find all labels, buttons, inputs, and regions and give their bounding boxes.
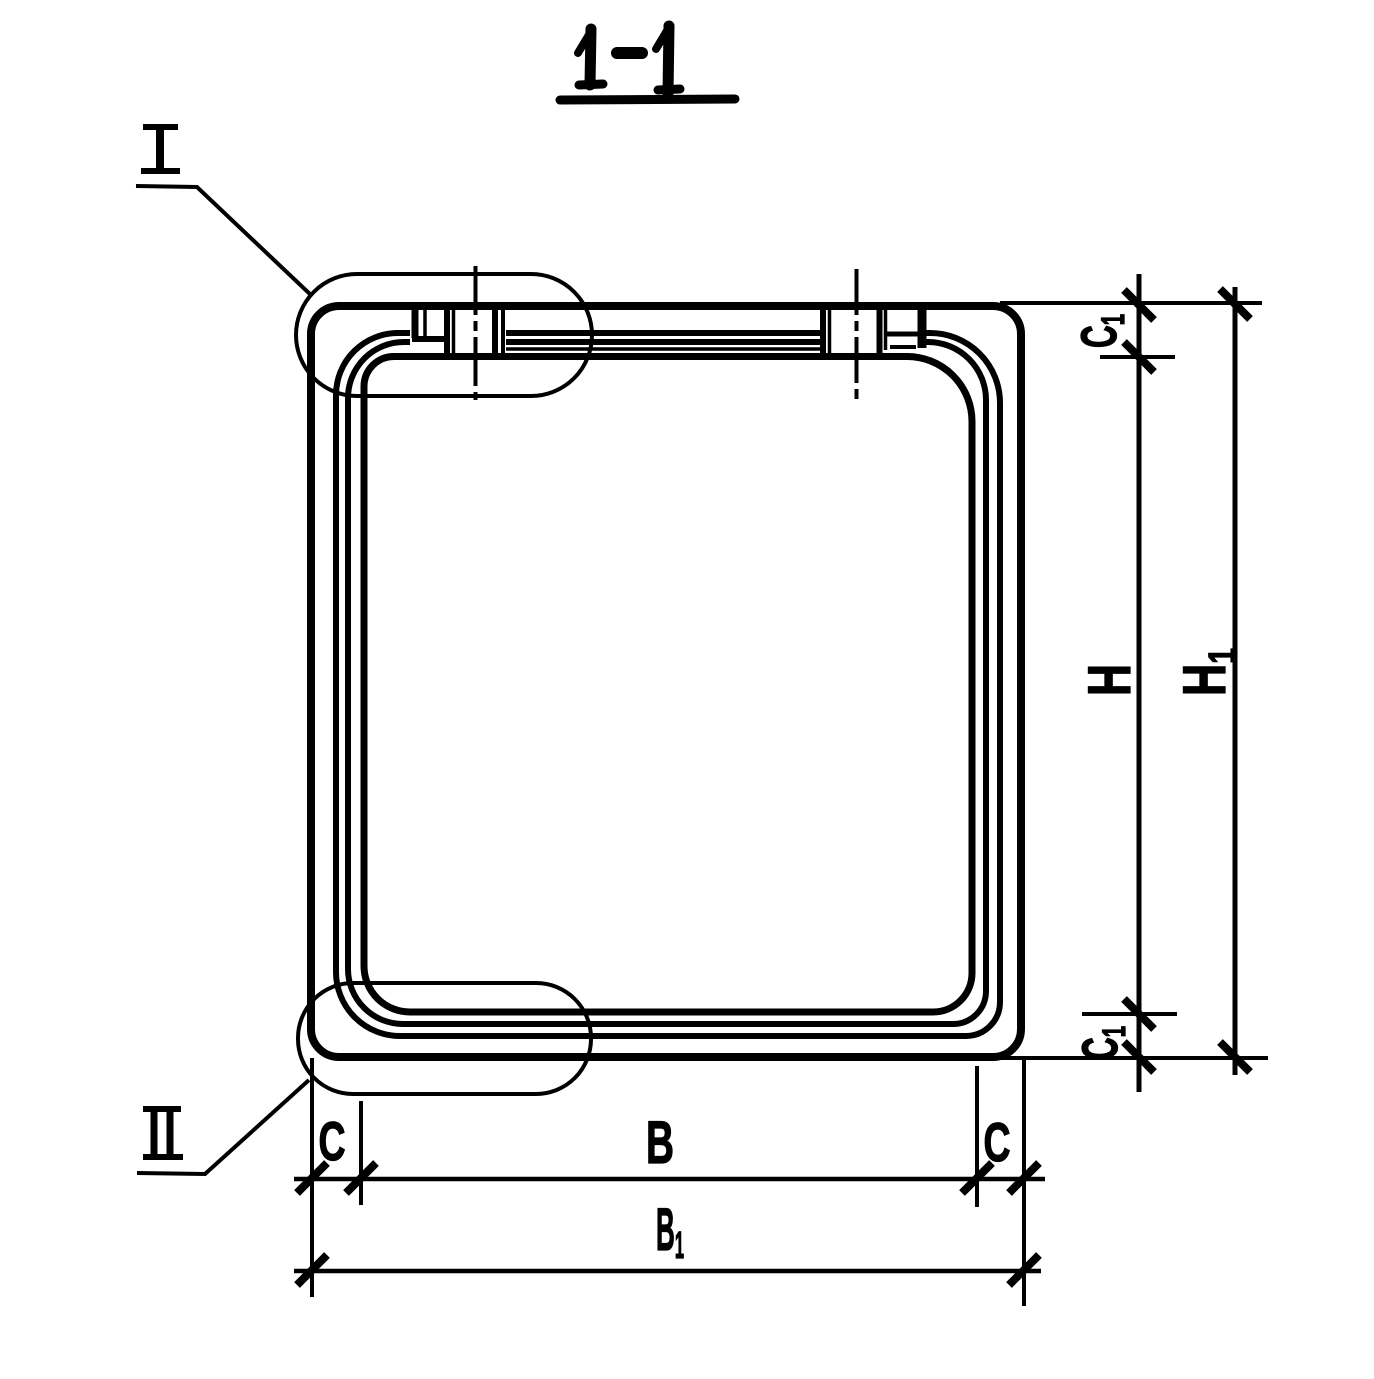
svg-text:C: C (319, 1110, 346, 1172)
svg-text:H: H (1076, 664, 1143, 696)
svg-text:B: B (646, 1109, 674, 1176)
svg-text:C: C (984, 1111, 1011, 1173)
